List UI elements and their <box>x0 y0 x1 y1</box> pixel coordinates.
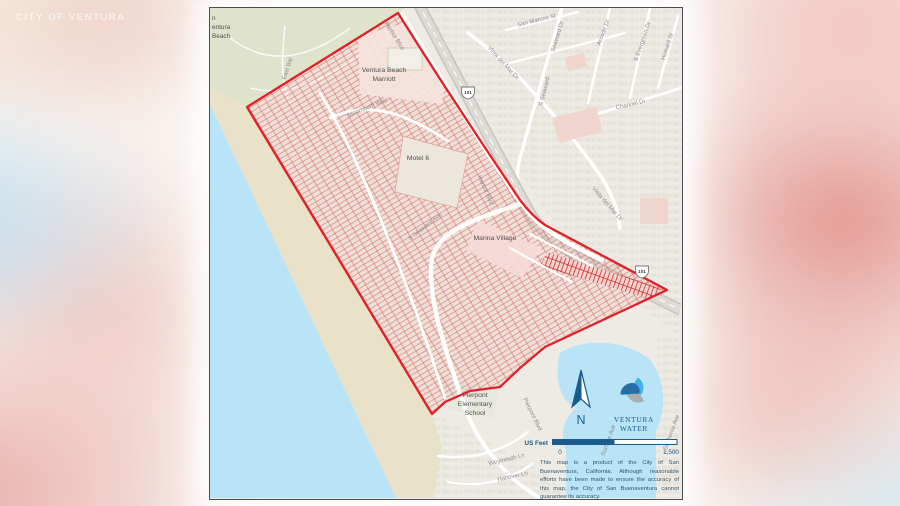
poi-motel6: Motel 6 <box>407 155 430 162</box>
map-frame: 101 101 n entura Beach Ventura Beach Mar… <box>209 7 683 500</box>
north-arrow-label: N <box>576 413 585 427</box>
ventura-water-logo-line2: WATER <box>620 424 648 433</box>
corner-place-line1: n <box>212 15 216 22</box>
poi-school-line3: School <box>465 410 486 417</box>
poi-school-line2: Elementary <box>458 401 493 408</box>
poi-school-line1: Pierpont <box>462 392 487 399</box>
shield-2-number: 101 <box>638 269 646 274</box>
poi-marriott-line1: Ventura Beach <box>362 67 407 74</box>
scale-bar-label: US Feet <box>525 440 549 447</box>
screenshot-stage: CITY OF VENTURA <box>0 0 900 506</box>
scale-bar-zero: 0 <box>558 449 562 456</box>
corner-place-line2: entura <box>212 24 231 31</box>
corner-place-line3: Beach <box>212 33 231 40</box>
ventura-water-logo-line1: VENTURA <box>614 415 654 424</box>
city-watermark: CITY OF VENTURA <box>16 12 125 23</box>
shield-1-number: 101 <box>464 90 472 95</box>
map-canvas: 101 101 n entura Beach Ventura Beach Mar… <box>210 8 681 498</box>
scale-bar-max: 1,500 <box>663 449 679 456</box>
map-disclaimer: This map is a product of the City of San… <box>540 459 679 500</box>
poi-marriott-line2: Marriott <box>372 76 395 83</box>
poi-marina-village: Marina Village <box>474 235 517 242</box>
